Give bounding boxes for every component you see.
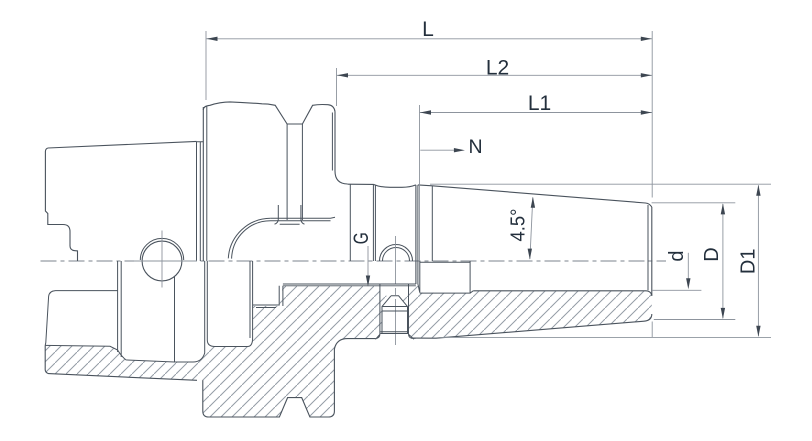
svg-text:L: L: [422, 18, 434, 41]
svg-text:N: N: [469, 136, 483, 158]
svg-text:L1: L1: [528, 92, 551, 115]
svg-text:4.5°: 4.5°: [507, 209, 529, 242]
svg-text:d: d: [666, 250, 688, 261]
svg-text:D1: D1: [737, 249, 759, 275]
svg-text:L2: L2: [486, 57, 509, 80]
svg-text:G: G: [350, 232, 373, 244]
svg-text:D: D: [701, 247, 723, 261]
